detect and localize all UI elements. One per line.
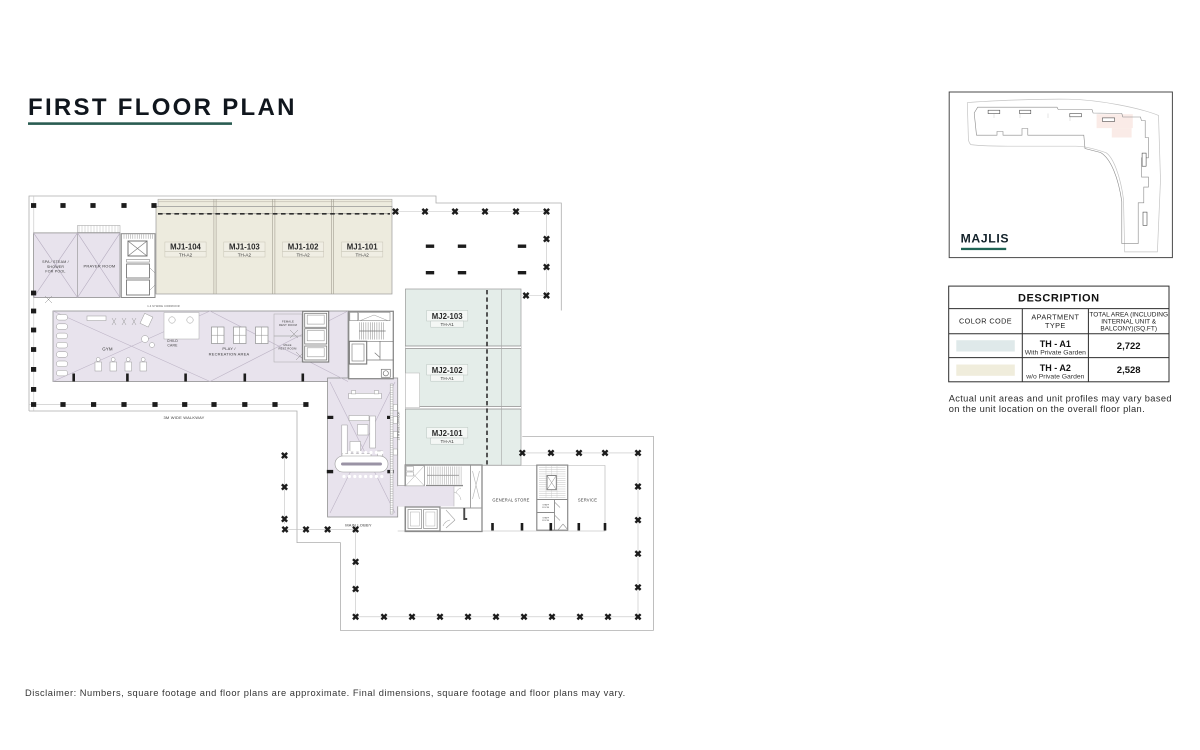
svg-text:TOTAL AREA (INCLUDING: TOTAL AREA (INCLUDING [1089, 312, 1168, 319]
svg-text:MJ1-103: MJ1-103 [229, 243, 260, 252]
svg-text:on the unit location on the ov: on the unit location on the overall floo… [949, 404, 1145, 414]
svg-text:CARE: CARE [167, 343, 178, 347]
svg-text:Actual unit areas and unit pro: Actual unit areas and unit profiles may … [949, 394, 1172, 404]
svg-text:2,722: 2,722 [1117, 341, 1141, 352]
svg-text:MALE: MALE [283, 343, 291, 347]
svg-text:PLAY /: PLAY / [222, 346, 236, 351]
svg-text:RECREATION AREA: RECREATION AREA [209, 351, 250, 356]
svg-text:MJ2-101: MJ2-101 [432, 429, 463, 438]
svg-text:1.8 M WIDE CORRIDOR: 1.8 M WIDE CORRIDOR [397, 411, 401, 440]
svg-text:ROOM: ROOM [542, 507, 549, 509]
svg-text:MAIN LOBBY: MAIN LOBBY [345, 523, 372, 528]
svg-text:3M WIDE WALKWAY: 3M WIDE WALKWAY [163, 415, 204, 420]
svg-text:FEMALE: FEMALE [282, 320, 294, 324]
svg-text:MJ1-101: MJ1-101 [347, 243, 378, 252]
svg-text:SPA / STEAM /: SPA / STEAM / [42, 260, 69, 264]
svg-text:MJ1-102: MJ1-102 [288, 243, 319, 252]
svg-text:FIRST FLOOR PLAN: FIRST FLOOR PLAN [28, 94, 297, 121]
svg-text:TH-A2: TH-A2 [179, 252, 193, 257]
svg-text:TH-A2: TH-A2 [356, 252, 370, 257]
svg-text:TH-A2: TH-A2 [238, 252, 252, 257]
svg-text:TH-A1: TH-A1 [441, 376, 455, 381]
svg-text:ROOM: ROOM [542, 520, 549, 522]
svg-text:2,528: 2,528 [1117, 365, 1141, 376]
svg-text:TH-A1: TH-A1 [441, 322, 455, 327]
svg-text:FOR POOL: FOR POOL [45, 270, 65, 274]
svg-text:INTERNAL UNIT &: INTERNAL UNIT & [1101, 319, 1157, 326]
svg-text:DESCRIPTION: DESCRIPTION [1018, 293, 1100, 305]
svg-text:MJ2-103: MJ2-103 [432, 312, 463, 321]
svg-text:STAFF: STAFF [542, 517, 549, 520]
svg-text:TH-A2: TH-A2 [296, 252, 310, 257]
svg-text:COLOR CODE: COLOR CODE [959, 317, 1012, 326]
svg-text:GENERAL STORE: GENERAL STORE [492, 498, 529, 503]
svg-text:MJ1-104: MJ1-104 [170, 243, 201, 252]
svg-text:REST ROOM: REST ROOM [279, 323, 298, 327]
svg-text:PRAYER ROOM: PRAYER ROOM [84, 264, 116, 269]
svg-text:w/o Private Garden: w/o Private Garden [1025, 374, 1084, 381]
svg-text:MJ2-102: MJ2-102 [432, 366, 463, 375]
svg-text:Disclaimer: Numbers, square fo: Disclaimer: Numbers, square footage and … [25, 688, 626, 698]
svg-text:GYM: GYM [102, 347, 113, 352]
svg-text:SERVICE: SERVICE [578, 498, 597, 503]
svg-text:TH - A2: TH - A2 [1040, 363, 1071, 373]
svg-text:MAJLIS: MAJLIS [961, 232, 1010, 246]
svg-text:TYPE: TYPE [1045, 321, 1066, 330]
svg-text:TH-A1: TH-A1 [441, 439, 455, 444]
svg-text:1.4 M WIDE CORRIDOR: 1.4 M WIDE CORRIDOR [147, 304, 180, 308]
svg-text:REST ROOM: REST ROOM [278, 347, 297, 351]
svg-text:SHOWER: SHOWER [47, 265, 65, 269]
svg-text:BALCONY)(SQ.FT): BALCONY)(SQ.FT) [1100, 326, 1157, 333]
svg-text:TH - A1: TH - A1 [1040, 339, 1071, 349]
svg-text:STAFF: STAFF [542, 504, 549, 507]
svg-text:CHILD: CHILD [167, 339, 179, 343]
svg-text:With Private Garden: With Private Garden [1025, 350, 1086, 357]
